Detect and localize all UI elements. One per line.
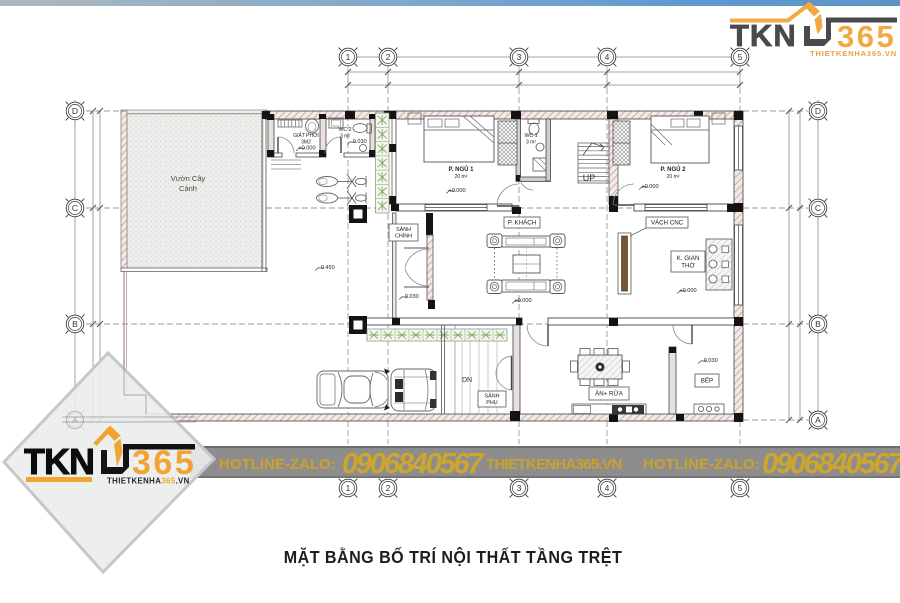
svg-text:D: D: [815, 106, 821, 116]
svg-text:P. NGỦ 1: P. NGỦ 1: [449, 166, 475, 173]
svg-text:TKN: TKN: [730, 18, 797, 53]
svg-text:B: B: [72, 319, 78, 329]
svg-text:1: 1: [346, 52, 351, 62]
svg-text:WC 2: WC 2: [339, 127, 352, 133]
svg-text:B: B: [815, 319, 821, 329]
svg-text:P. NGỦ 2: P. NGỦ 2: [661, 166, 687, 173]
svg-text:K. GIAN: K. GIAN: [677, 255, 700, 262]
svg-text:1: 1: [346, 483, 351, 493]
svg-text:SẢNH: SẢNH: [396, 226, 411, 233]
svg-text:2: 2: [386, 483, 391, 493]
svg-text:P. KHÁCH: P. KHÁCH: [508, 220, 536, 227]
svg-text:20 m²: 20 m²: [455, 174, 468, 180]
svg-text:3: 3: [517, 483, 522, 493]
svg-text:PHỤ: PHỤ: [486, 400, 497, 406]
svg-text:Cảnh: Cảnh: [179, 184, 197, 193]
svg-text:THIETKENHA365.VN: THIETKENHA365.VN: [107, 477, 190, 486]
svg-text:A: A: [815, 415, 821, 425]
svg-text:DN: DN: [462, 377, 472, 384]
svg-text:WC 1: WC 1: [525, 133, 538, 139]
svg-text:UP: UP: [583, 173, 596, 183]
svg-text:GIẶT PHƠI: GIẶT PHƠI: [293, 132, 319, 139]
svg-text:THỜ: THỜ: [681, 262, 695, 269]
svg-text:4: 4: [605, 52, 610, 62]
svg-text:3 m²: 3 m²: [526, 140, 536, 146]
svg-text:ĂN+ RỬA: ĂN+ RỬA: [595, 391, 624, 398]
svg-text:VÁCH CNC: VÁCH CNC: [651, 220, 684, 227]
svg-text:3: 3: [517, 52, 522, 62]
svg-text:20 m²: 20 m²: [667, 174, 680, 180]
svg-text:C: C: [815, 203, 821, 213]
svg-text:5: 5: [738, 483, 743, 493]
svg-text:THIETKENHA365.VN: THIETKENHA365.VN: [810, 49, 897, 58]
svg-text:Vườn Cây: Vườn Cây: [171, 174, 206, 183]
svg-text:D: D: [72, 106, 78, 116]
svg-text:BẾP: BẾP: [701, 378, 713, 385]
svg-text:CHÍNH: CHÍNH: [395, 233, 412, 240]
svg-text:TKN: TKN: [24, 441, 94, 482]
svg-text:C: C: [72, 203, 78, 213]
svg-text:SẢNH: SẢNH: [485, 393, 500, 400]
svg-text:2: 2: [386, 52, 391, 62]
svg-text:4: 4: [605, 483, 610, 493]
